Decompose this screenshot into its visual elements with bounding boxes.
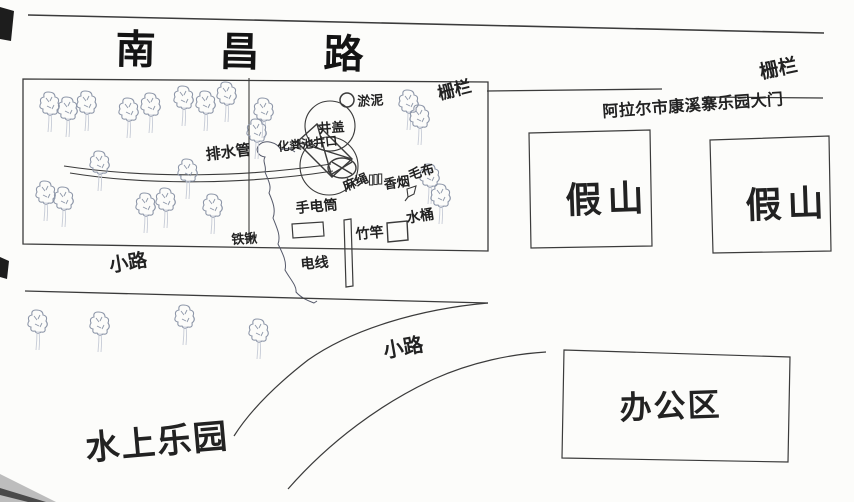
path-straight-line <box>25 291 488 303</box>
tree-icon <box>136 193 155 233</box>
flashlight-rect <box>292 222 324 238</box>
tree-icon <box>28 310 47 350</box>
scan-artifact <box>0 257 9 279</box>
tree-icon <box>249 319 268 359</box>
tree-icon <box>217 82 236 122</box>
tree-icon <box>410 105 429 145</box>
path-curve-upper <box>234 303 488 436</box>
tree-grove <box>28 82 450 359</box>
tree-icon <box>254 98 273 138</box>
wire-label: 电线 <box>300 255 329 271</box>
silt-circle <box>340 93 354 107</box>
rockery-1-label: 假山 <box>565 180 650 219</box>
tree-icon <box>156 188 175 228</box>
cigarette-label: 香烟 <box>383 174 411 190</box>
tree-icon <box>90 312 109 352</box>
tree-icon <box>58 97 77 137</box>
tree-icon <box>54 187 73 227</box>
road-name-label: 南昌路 <box>115 30 428 77</box>
office-area-label: 办公区 <box>619 388 722 424</box>
tree-icon <box>36 181 55 221</box>
tree-icon <box>196 91 215 131</box>
shovel-label: 铁锹 <box>231 232 258 246</box>
tree-icon <box>77 91 96 131</box>
manhole-cover-label: 井盖 <box>318 120 345 135</box>
scanned-site-sketch: 南昌路 栅栏 栅栏 阿拉尔市康溪寨乐园大门 假山 假山 办公区 水上乐园 小路 … <box>0 0 854 502</box>
tree-icon <box>141 93 160 133</box>
tree-icon <box>40 92 59 132</box>
tree-icon <box>174 86 193 126</box>
tree-icon <box>178 159 197 199</box>
bucket-rect <box>387 221 408 242</box>
tree-icon <box>119 98 138 138</box>
silt-label: 淤泥 <box>357 93 384 108</box>
cigarette-icon <box>370 174 382 185</box>
scan-artifact <box>0 7 14 41</box>
road-char: 路 <box>323 32 428 78</box>
bamboo-pole-label: 竹竿 <box>355 225 384 241</box>
bamboo-pole-rect <box>344 219 353 287</box>
tree-icon <box>399 90 418 130</box>
fence-line-left-of-gate <box>487 89 662 91</box>
tree-icon <box>175 305 194 345</box>
bucket-label: 水桶 <box>405 207 435 225</box>
road-char: 南 <box>115 28 220 74</box>
path-curve-lower <box>288 352 546 489</box>
drain-pipe-line <box>70 171 333 182</box>
road-char: 昌 <box>219 30 324 76</box>
flashlight-label: 手电筒 <box>295 197 338 215</box>
tree-icon <box>203 194 222 234</box>
rockery-2-label: 假山 <box>745 185 830 224</box>
